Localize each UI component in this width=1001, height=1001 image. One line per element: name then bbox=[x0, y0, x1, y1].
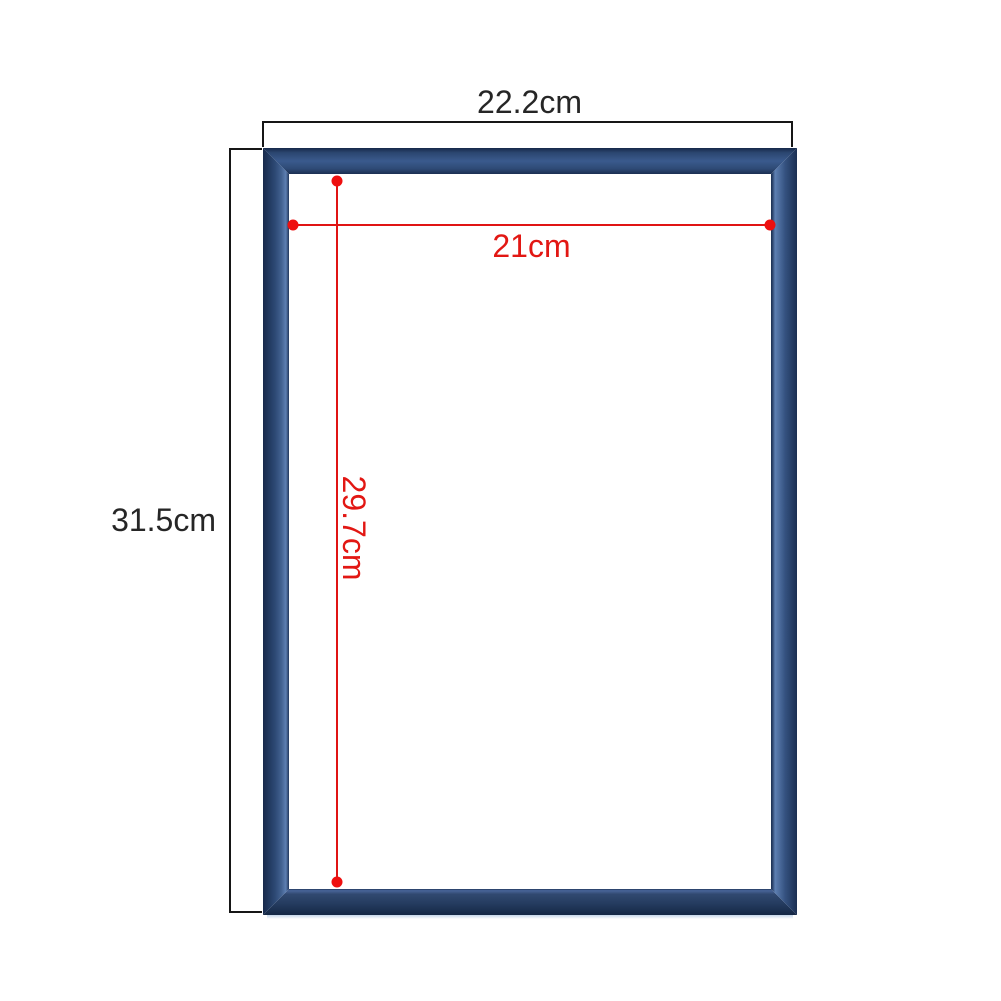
frame-left-rail bbox=[263, 148, 289, 915]
inner-width-endpoint-dot-right bbox=[765, 220, 776, 231]
inner-width-label: 21cm bbox=[293, 230, 770, 262]
outer-height-bracket bbox=[229, 148, 262, 913]
outer-width-label: 22.2cm bbox=[263, 86, 796, 118]
outer-width-bracket bbox=[262, 121, 793, 147]
inner-height-endpoint-dot-bottom bbox=[332, 877, 343, 888]
frame-top-rail bbox=[263, 148, 797, 174]
inner-width-line bbox=[293, 224, 770, 226]
dimension-diagram: 22.2cm 31.5cm 21cm 29.7cm bbox=[0, 0, 1001, 1001]
inner-width-endpoint-dot-left bbox=[288, 220, 299, 231]
outer-height-label: 31.5cm bbox=[96, 504, 216, 536]
inner-height-endpoint-dot-top bbox=[332, 176, 343, 187]
frame-right-rail bbox=[771, 148, 797, 915]
frame-shadow bbox=[267, 915, 793, 919]
inner-height-label: 29.7cm bbox=[338, 476, 370, 581]
frame-bottom-rail bbox=[263, 889, 797, 915]
